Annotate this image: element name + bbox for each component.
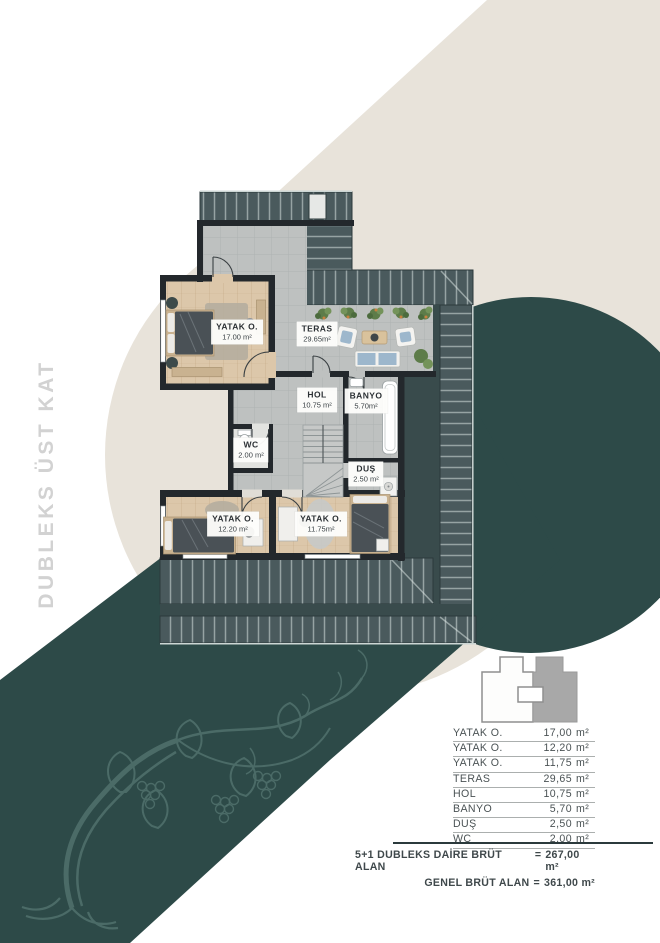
armchair [335,325,358,349]
wall [197,220,354,226]
total-value: 267,00 m² [545,849,595,873]
roof-bottom-outer-strip [160,616,476,643]
room-name: YATAK O. [216,322,258,333]
table-row: YATAK O. 12,20 m² [453,742,595,757]
roof-bottom-inner-strip [160,558,433,604]
roof-top-strip [200,192,352,222]
room-name: YATAK O. [212,514,254,525]
room-name: DUŞ [353,464,378,475]
room-label-yatak-1220: YATAK O. 12.20 m² [207,512,259,537]
sink [350,379,363,387]
table-row: BANYO 5,70 m² [453,803,595,818]
total-value: 361,00 m² [544,877,595,889]
wall [269,490,276,560]
totals-divider [393,842,653,844]
nightstand [166,297,178,309]
room-name: BANYO [350,391,383,402]
row-value: 10,75 [535,788,572,800]
row-value: 29,65 [535,773,572,785]
row-label: HOL [453,788,535,800]
row-unit: m² [572,818,595,830]
row-unit: m² [572,788,595,800]
totals-block: 5+1 DUBLEKS DAİRE BRÜT ALAN = 267,00 m² … [355,849,595,892]
row-value: 11,75 [535,757,572,769]
room-area: 5.70m² [350,401,383,410]
room-area: 12.20 m² [212,524,254,533]
room-area: 2.50 m² [353,474,378,483]
window [305,555,360,559]
table-row: YATAK O. 17,00 m² [453,727,595,742]
window [183,555,227,559]
table-row: TERAS 29,65 m² [453,773,595,788]
room-label-teras: TERAS 29.65m² [297,322,338,347]
room-label-dus: DUŞ 2.50 m² [348,462,383,487]
room-label-banyo: BANYO 5.70m² [345,389,388,414]
staircase [303,425,343,497]
row-label: YATAK O. [453,742,535,754]
window [161,300,166,362]
total-label: GENEL BRÜT ALAN [424,877,529,889]
bench [172,368,222,377]
total-row-gross-general: GENEL BRÜT ALAN = 361,00 m² [355,877,595,889]
area-table: YATAK O. 17,00 m² YATAK O. 12,20 m² YATA… [453,727,595,849]
row-value: 12,20 [535,742,572,754]
room-label-yatak-17: YATAK O. 17.00 m² [211,320,263,345]
roof-eave-bottom [160,604,472,616]
room-area: 10.75 m² [302,400,332,409]
room-label-wc: WC 2.00 m² [233,438,268,463]
row-label: DUŞ [453,818,535,830]
roof-right-strip [440,305,472,617]
key-plan-core [518,687,543,702]
page: DUBLEKS ÜST KAT YATAK O. 17.00 m² TERAS … [0,0,660,943]
table-row: DUŞ 2,50 m² [453,818,595,833]
wall [228,468,273,473]
equals-sign: = [535,849,542,861]
row-value: 5,70 [535,803,572,815]
row-label: TERAS [453,773,535,785]
room-label-yatak-1175: YATAK O. 11.75m² [295,512,347,537]
table-row: YATAK O. 11,75 m² [453,757,595,772]
wall [398,371,405,561]
row-unit: m² [572,727,595,739]
sun-lounger [355,351,400,367]
roof-terrace-strip [305,270,473,305]
roof-corner-block [305,222,352,270]
roof-opening [309,194,326,219]
room-area: 17.00 m² [216,332,258,341]
table-row: WC 2,00 m² [453,833,595,848]
row-unit: m² [572,757,595,769]
row-unit: m² [572,773,595,785]
floor-title-vertical: DUBLEKS ÜST KAT [35,359,59,608]
row-label: YATAK O. [453,727,535,739]
wall [197,220,203,282]
room-name: WC [238,440,263,451]
nightstand [377,539,389,551]
row-value: 2,50 [535,818,572,830]
row-value: 17,00 [535,727,572,739]
room-label-hol: HOL 10.75 m² [297,388,337,413]
table-row: HOL 10,75 m² [453,788,595,803]
room-area: 11.75m² [300,524,342,533]
armchair [395,327,416,347]
equals-sign: = [534,877,541,889]
wall [160,384,275,391]
roof-dark-fill [404,371,432,561]
row-unit: m² [572,803,595,815]
room-name: YATAK O. [300,514,342,525]
room-area: 29.65m² [302,334,333,343]
double-bed [166,310,214,356]
total-label: 5+1 DUBLEKS DAİRE BRÜT ALAN [355,849,531,873]
room-area: 2.00 m² [238,450,263,459]
coffee-table [362,331,387,344]
room-name: HOL [302,390,332,401]
row-label: BANYO [453,803,535,815]
total-row-gross-flat: 5+1 DUBLEKS DAİRE BRÜT ALAN = 267,00 m² [355,849,595,873]
row-unit: m² [572,742,595,754]
room-name: TERAS [302,324,333,335]
row-label: YATAK O. [453,757,535,769]
